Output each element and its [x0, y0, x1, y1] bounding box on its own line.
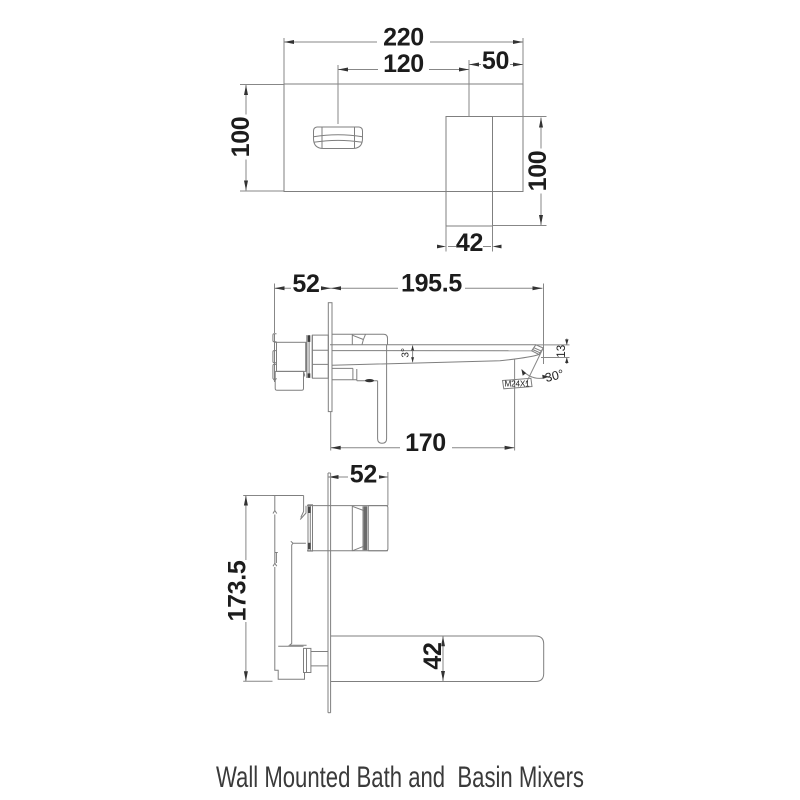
- svg-text:195.5: 195.5: [401, 270, 462, 298]
- svg-text:52: 52: [292, 270, 319, 298]
- svg-text:100: 100: [524, 151, 552, 192]
- svg-text:120: 120: [383, 50, 424, 78]
- svg-text:173.5: 173.5: [224, 560, 252, 621]
- svg-text:170: 170: [405, 429, 446, 457]
- svg-text:50: 50: [482, 47, 509, 75]
- svg-text:3°: 3°: [401, 348, 412, 358]
- svg-text:M24X1: M24X1: [505, 380, 531, 389]
- svg-text:42: 42: [419, 642, 447, 669]
- svg-text:220: 220: [383, 24, 424, 52]
- svg-text:100: 100: [227, 117, 255, 158]
- svg-text:42: 42: [456, 229, 483, 257]
- svg-text:13: 13: [556, 345, 568, 358]
- svg-text:Wall Mounted Bath and Basin M: Wall Mounted Bath and Basin Mixers: [216, 761, 584, 794]
- svg-text:52: 52: [350, 461, 377, 489]
